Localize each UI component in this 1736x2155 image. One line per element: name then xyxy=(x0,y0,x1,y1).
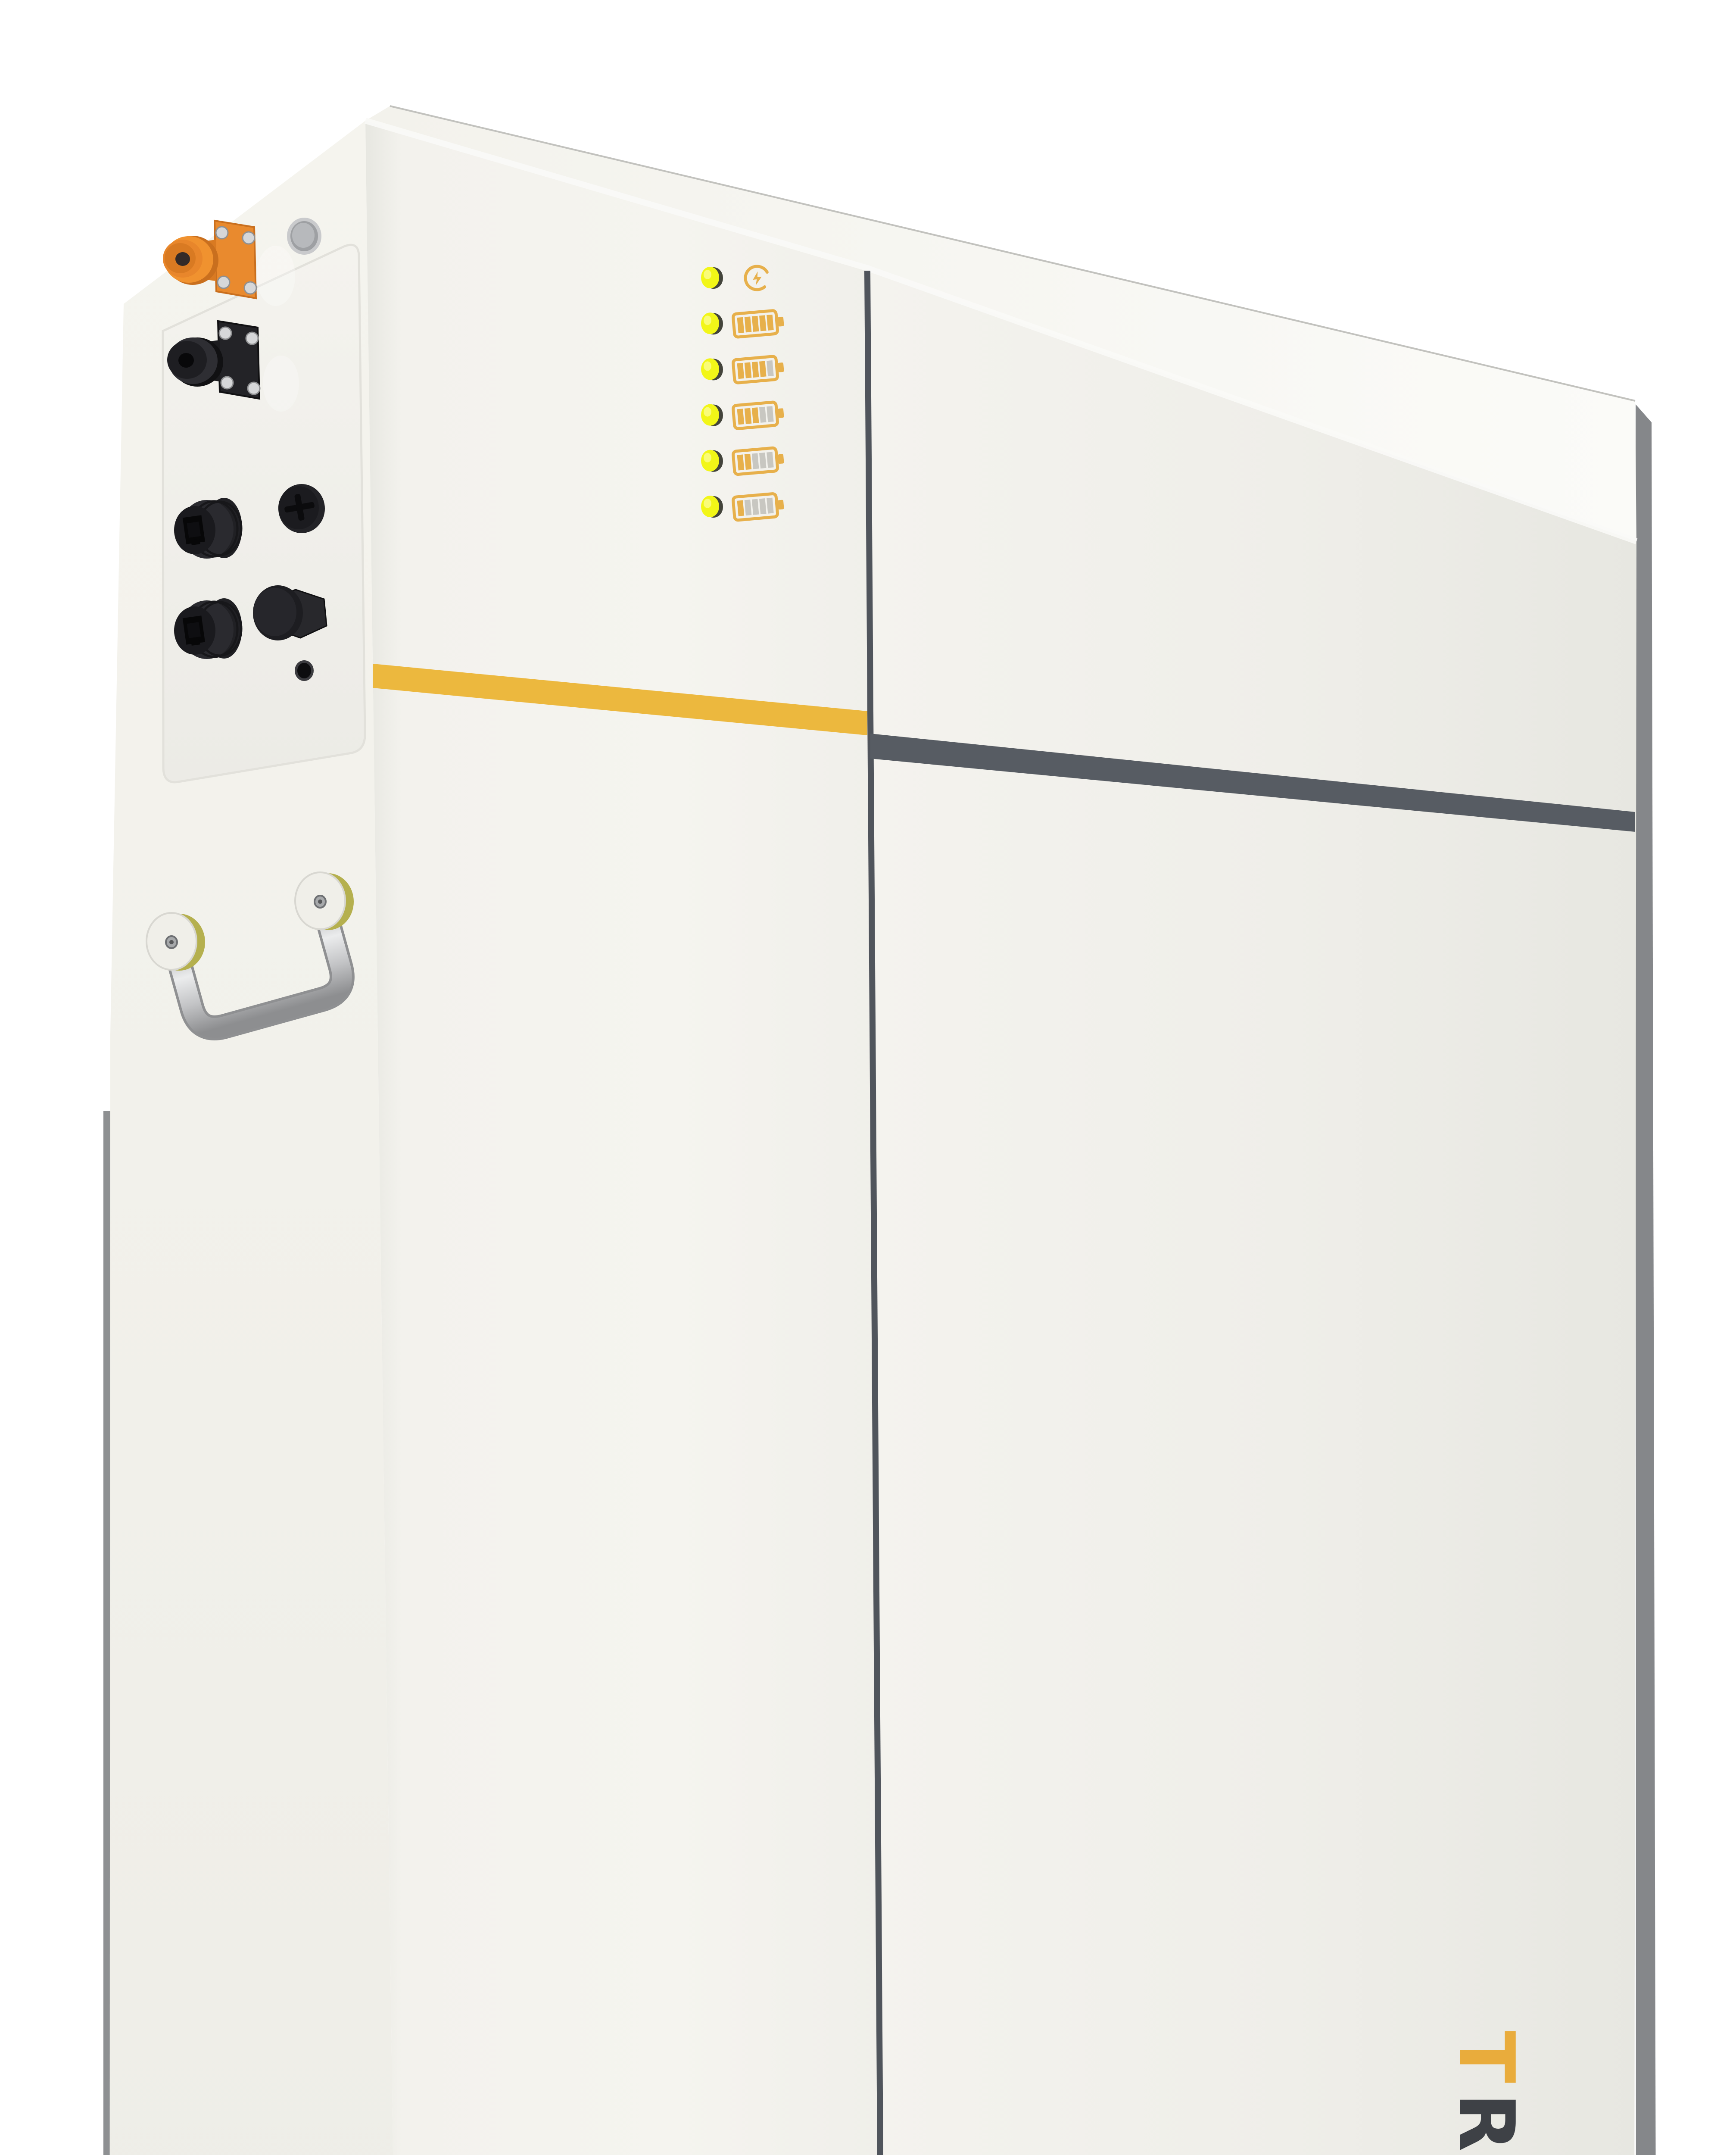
screw-icon xyxy=(218,276,230,288)
logo-triple: TRIPLE xyxy=(1442,2031,1531,2155)
handle-bracket-right xyxy=(295,872,354,930)
panel-reflection xyxy=(263,356,299,412)
screw-icon xyxy=(248,382,260,394)
vent-plug-cross xyxy=(278,484,325,533)
led-dot xyxy=(701,450,723,472)
screw-icon xyxy=(216,227,228,239)
screw-icon xyxy=(221,377,233,389)
screw-icon xyxy=(246,332,258,344)
logo-triple-first: T xyxy=(1442,2031,1531,2090)
led-dot xyxy=(701,404,723,426)
front-right-panel xyxy=(867,268,1636,2155)
product-render-canvas: TRIPLE POWER xyxy=(0,0,1736,2155)
drain-hole xyxy=(296,662,312,680)
power-button-silver xyxy=(287,218,321,255)
front-left-panel xyxy=(365,121,884,2155)
led-dot xyxy=(701,312,723,334)
led-dot xyxy=(701,267,723,289)
led-dot xyxy=(701,358,723,380)
handle-bracket-left xyxy=(146,913,205,971)
logo-triple-rest: RIPLE xyxy=(1442,2093,1531,2155)
screw-icon xyxy=(244,282,256,294)
screw-icon xyxy=(219,327,231,339)
led-dot xyxy=(701,496,723,518)
screw-icon xyxy=(243,232,255,244)
panel-reflection xyxy=(256,246,295,306)
